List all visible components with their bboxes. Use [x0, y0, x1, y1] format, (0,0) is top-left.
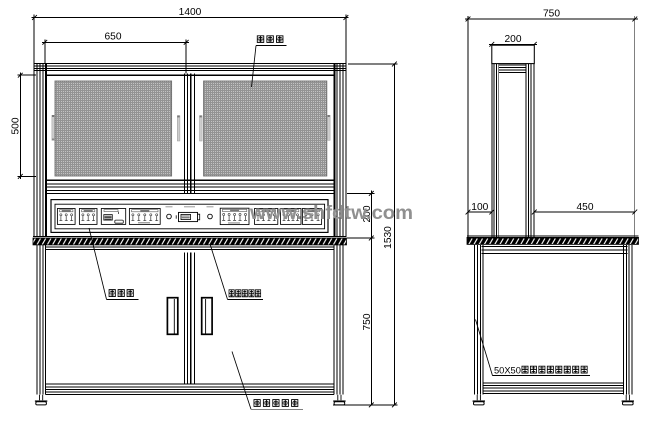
svg-text:www.shfdtw.com: www.shfdtw.com [249, 202, 413, 224]
svg-text:1400: 1400 [179, 7, 202, 18]
svg-text:750: 750 [543, 9, 560, 20]
svg-text:500: 500 [10, 117, 21, 134]
svg-text:450: 450 [577, 202, 594, 213]
svg-text:650: 650 [105, 32, 122, 43]
svg-text:200: 200 [505, 34, 522, 45]
svg-text:50X50: 50X50 [494, 365, 521, 375]
svg-text:1530: 1530 [383, 226, 394, 249]
svg-text:100: 100 [471, 202, 488, 213]
svg-text:750: 750 [362, 313, 373, 330]
